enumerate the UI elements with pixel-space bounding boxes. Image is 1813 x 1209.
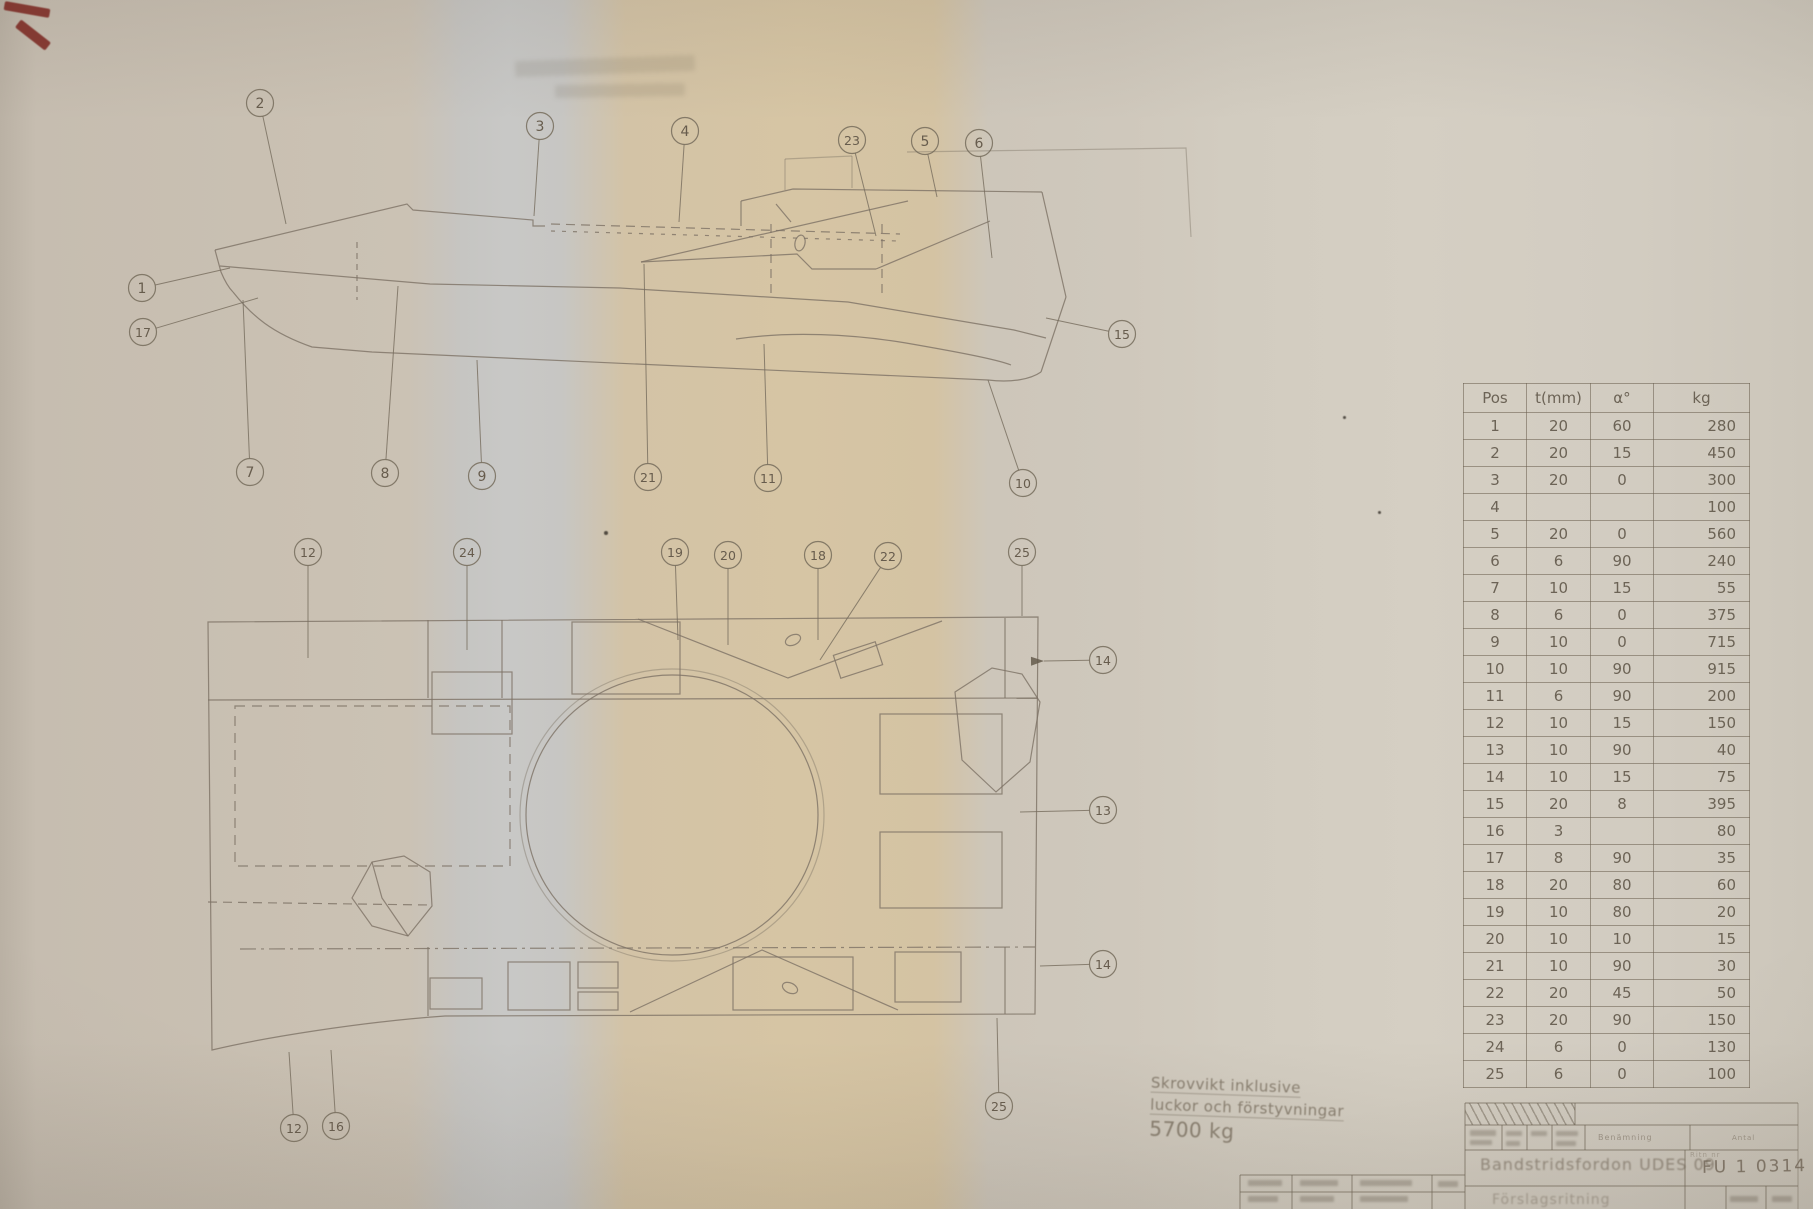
illegible-text xyxy=(1438,1181,1458,1187)
parts-table-cell: 15 xyxy=(1591,575,1654,602)
parts-table-cell: 240 xyxy=(1654,548,1750,575)
blueprint-photo: 234235611715789211110 122419201822251413… xyxy=(0,0,1813,1209)
illegible-text xyxy=(1248,1180,1282,1186)
callout-number: 11 xyxy=(760,471,776,486)
parts-table-cell: 715 xyxy=(1654,629,1750,656)
parts-table-cell: 0 xyxy=(1591,602,1654,629)
callout-number: 25 xyxy=(991,1099,1007,1114)
parts-table-cell: 35 xyxy=(1654,845,1750,872)
callout-number: 15 xyxy=(1114,327,1130,342)
parts-table-header-cell: t(mm) xyxy=(1527,384,1591,413)
callout-number: 5 xyxy=(921,134,930,150)
parts-table-cell: 90 xyxy=(1591,683,1654,710)
illegible-text xyxy=(1360,1180,1412,1186)
callout-number: 1 xyxy=(138,281,147,297)
parts-table-cell: 20 xyxy=(1527,872,1591,899)
parts-table-cell xyxy=(1591,818,1654,845)
illegible-text xyxy=(1300,1196,1334,1202)
callout-number: 16 xyxy=(328,1119,344,1134)
parts-table-cell: 150 xyxy=(1654,1007,1750,1034)
callout-number: 13 xyxy=(1095,803,1111,818)
parts-table-cell: 2 xyxy=(1464,440,1527,467)
callout-13: 13 xyxy=(1020,797,1117,824)
parts-table-cell: 15 xyxy=(1591,764,1654,791)
parts-table-cell: 20 xyxy=(1654,899,1750,926)
parts-table-cell: 25 xyxy=(1464,1061,1527,1088)
illegible-text xyxy=(1730,1196,1758,1202)
parts-table-cell: 75 xyxy=(1654,764,1750,791)
callout-number: 3 xyxy=(536,119,545,135)
parts-table-cell: 300 xyxy=(1654,467,1750,494)
parts-table-header-cell: kg xyxy=(1654,384,1750,413)
callout-2: 2 xyxy=(247,90,287,225)
callout-15: 15 xyxy=(1046,318,1136,348)
callout-number: 14 xyxy=(1095,957,1111,972)
parts-table-cell: 20 xyxy=(1527,1007,1591,1034)
parts-table-cell: 130 xyxy=(1654,1034,1750,1061)
parts-table-cell: 3 xyxy=(1527,818,1591,845)
parts-table-cell: 55 xyxy=(1654,575,1750,602)
parts-table-cell: 20 xyxy=(1527,413,1591,440)
vehicle-word: Bandstridsfordon xyxy=(1480,1155,1633,1174)
callout-10: 10 xyxy=(988,380,1037,497)
parts-table-cell: 24 xyxy=(1464,1034,1527,1061)
drawing-number: FU 1 0314 xyxy=(1702,1156,1807,1178)
callout-1: 1 xyxy=(129,268,231,302)
parts-table-cell: 4 xyxy=(1464,494,1527,521)
parts-table-cell: 10 xyxy=(1527,629,1591,656)
parts-table-cell: 5 xyxy=(1464,521,1527,548)
parts-table-cell: 20 xyxy=(1527,521,1591,548)
callout-6: 6 xyxy=(966,130,993,259)
callout-number: 18 xyxy=(810,548,826,563)
parts-table-cell: 915 xyxy=(1654,656,1750,683)
parts-table-cell: 150 xyxy=(1654,710,1750,737)
title-block-bottom-note: Förslagsritning xyxy=(1492,1192,1610,1208)
handwritten-note: Skrovvikt inklusive luckor och förstyvni… xyxy=(1149,1073,1345,1150)
parts-table-cell: 0 xyxy=(1591,629,1654,656)
parts-table-cell: 0 xyxy=(1591,467,1654,494)
parts-table-cell: 200 xyxy=(1654,683,1750,710)
callout-12: 12 xyxy=(295,539,322,659)
callout-number: 25 xyxy=(1014,545,1030,560)
callout-9: 9 xyxy=(469,360,496,490)
parts-table-cell: 30 xyxy=(1654,953,1750,980)
callout-18: 18 xyxy=(805,542,832,641)
callout-12: 12 xyxy=(281,1052,308,1142)
parts-table-cell: 90 xyxy=(1591,548,1654,575)
callout-11: 11 xyxy=(755,344,782,492)
parts-table-cell: 10 xyxy=(1527,710,1591,737)
parts-table-cell: 100 xyxy=(1654,494,1750,521)
illegible-text xyxy=(1531,1131,1547,1136)
callout-8: 8 xyxy=(372,286,399,487)
parts-table-cell: 21 xyxy=(1464,953,1527,980)
parts-table-cell: 8 xyxy=(1464,602,1527,629)
callout-14: 14 xyxy=(1031,647,1117,674)
parts-table-cell: 6 xyxy=(1527,548,1591,575)
callout-number: 14 xyxy=(1095,653,1111,668)
illegible-text xyxy=(1506,1131,1522,1136)
callout-number: 24 xyxy=(459,545,475,560)
parts-table-cell: 13 xyxy=(1464,737,1527,764)
callout-number: 12 xyxy=(286,1121,302,1136)
callout-4: 4 xyxy=(672,118,699,223)
illegible-text xyxy=(1470,1140,1492,1145)
parts-table-cell: 19 xyxy=(1464,899,1527,926)
callout-number: 6 xyxy=(975,136,984,152)
callout-number: 22 xyxy=(880,549,896,564)
parts-table-cell: 60 xyxy=(1591,413,1654,440)
callout-number: 21 xyxy=(640,470,656,485)
parts-table-cell: 40 xyxy=(1654,737,1750,764)
illegible-text xyxy=(1360,1196,1408,1202)
parts-table-header-cell: Pos xyxy=(1464,384,1527,413)
callout-7: 7 xyxy=(237,300,264,486)
parts-table-cell: 0 xyxy=(1591,1061,1654,1088)
parts-table-cell: 90 xyxy=(1591,737,1654,764)
benamning-label: Benämning xyxy=(1598,1133,1653,1142)
parts-table-cell: 22 xyxy=(1464,980,1527,1007)
parts-table-cell xyxy=(1591,494,1654,521)
antal-label: Antal xyxy=(1732,1134,1755,1142)
note-line: Skrovvikt inklusive xyxy=(1151,1074,1302,1098)
parts-table-cell: 10 xyxy=(1527,737,1591,764)
callout-number: 12 xyxy=(300,545,316,560)
parts-table-cell: 7 xyxy=(1464,575,1527,602)
parts-table-cell: 90 xyxy=(1591,1007,1654,1034)
parts-table-cell: 80 xyxy=(1591,872,1654,899)
callout-24: 24 xyxy=(454,539,481,651)
side-view-drawing xyxy=(215,148,1191,381)
parts-table-cell: 15 xyxy=(1464,791,1527,818)
illegible-text xyxy=(1556,1131,1578,1136)
parts-table-cell: 18 xyxy=(1464,872,1527,899)
callout-23: 23 xyxy=(839,127,877,237)
callout-16: 16 xyxy=(323,1050,350,1140)
parts-table-cell: 8 xyxy=(1591,791,1654,818)
parts-table-cell: 0 xyxy=(1591,521,1654,548)
callout-22: 22 xyxy=(820,543,902,661)
parts-table-cell: 10 xyxy=(1527,656,1591,683)
parts-table-cell: 80 xyxy=(1654,818,1750,845)
parts-table-cell: 20 xyxy=(1527,467,1591,494)
parts-table-header-cell: α° xyxy=(1591,384,1654,413)
parts-table-cell: 6 xyxy=(1527,683,1591,710)
parts-table-cell: 11 xyxy=(1464,683,1527,710)
parts-table-cell: 6 xyxy=(1527,1061,1591,1088)
parts-table-cell: 10 xyxy=(1527,926,1591,953)
callout-number: 4 xyxy=(681,124,690,140)
parts-table-cell: 12 xyxy=(1464,710,1527,737)
parts-table-cell: 16 xyxy=(1464,818,1527,845)
callout-20: 20 xyxy=(715,542,742,646)
parts-table-cell: 23 xyxy=(1464,1007,1527,1034)
callout-number: 20 xyxy=(720,548,736,563)
callout-number: 8 xyxy=(381,466,390,482)
parts-table-cell: 10 xyxy=(1527,575,1591,602)
parts-table: Post(mm)α°kg1206028022015450320030041005… xyxy=(1463,383,1750,1088)
parts-table-cell: 10 xyxy=(1591,926,1654,953)
illegible-text xyxy=(1248,1196,1278,1202)
parts-table-cell: 60 xyxy=(1654,872,1750,899)
parts-table-cell: 280 xyxy=(1654,413,1750,440)
callout-19: 19 xyxy=(662,539,689,641)
parts-table-cell: 15 xyxy=(1591,440,1654,467)
callout-21: 21 xyxy=(635,264,662,491)
callout-5: 5 xyxy=(912,128,939,198)
parts-table-cell: 1 xyxy=(1464,413,1527,440)
parts-table-cell: 45 xyxy=(1591,980,1654,1007)
illegible-text xyxy=(1300,1180,1338,1186)
parts-table-cell: 9 xyxy=(1464,629,1527,656)
plan-view-drawing xyxy=(208,617,1040,1050)
parts-table-cell: 10 xyxy=(1527,764,1591,791)
parts-table-cell xyxy=(1527,494,1591,521)
parts-table-cell: 90 xyxy=(1591,953,1654,980)
vehicle-designation: Bandstridsfordon UDES 09 xyxy=(1480,1155,1716,1174)
callout-number: 10 xyxy=(1015,476,1031,491)
parts-table-cell: 395 xyxy=(1654,791,1750,818)
parts-table-cell: 450 xyxy=(1654,440,1750,467)
note-weight: 5700 kg xyxy=(1149,1117,1235,1144)
illegible-text xyxy=(1506,1141,1520,1146)
parts-table-cell: 20 xyxy=(1464,926,1527,953)
parts-table-cell: 3 xyxy=(1464,467,1527,494)
parts-table-cell: 0 xyxy=(1591,1034,1654,1061)
parts-table-cell: 375 xyxy=(1654,602,1750,629)
callout-3: 3 xyxy=(527,113,554,217)
parts-table-cell: 20 xyxy=(1527,440,1591,467)
title-block-hatch xyxy=(1465,1103,1575,1125)
callout-number: 19 xyxy=(667,545,683,560)
callout-number: 7 xyxy=(246,465,255,481)
parts-table-cell: 50 xyxy=(1654,980,1750,1007)
parts-table-cell: 6 xyxy=(1527,1034,1591,1061)
callout-number: 2 xyxy=(256,96,265,112)
callout-17: 17 xyxy=(130,298,259,346)
parts-table-cell: 20 xyxy=(1527,791,1591,818)
callout-number: 9 xyxy=(478,469,487,485)
parts-table-cell: 17 xyxy=(1464,845,1527,872)
parts-table-cell: 10 xyxy=(1464,656,1527,683)
illegible-text xyxy=(1556,1141,1576,1146)
parts-table-cell: 15 xyxy=(1654,926,1750,953)
parts-table-cell: 6 xyxy=(1464,548,1527,575)
illegible-text xyxy=(1772,1196,1792,1202)
illegible-text xyxy=(1470,1130,1496,1136)
callout-number: 23 xyxy=(844,133,860,148)
parts-table-cell: 20 xyxy=(1527,980,1591,1007)
callout-25: 25 xyxy=(1009,539,1036,617)
parts-table-cell: 80 xyxy=(1591,899,1654,926)
parts-table-cell: 15 xyxy=(1591,710,1654,737)
callout-number: 17 xyxy=(135,325,151,340)
callout-25: 25 xyxy=(986,1018,1013,1120)
callout-14: 14 xyxy=(1040,951,1117,978)
parts-table-cell: 100 xyxy=(1654,1061,1750,1088)
parts-table-cell: 90 xyxy=(1591,845,1654,872)
parts-table-cell: 10 xyxy=(1527,953,1591,980)
parts-table-cell: 10 xyxy=(1527,899,1591,926)
parts-table-cell: 90 xyxy=(1591,656,1654,683)
parts-table-cell: 14 xyxy=(1464,764,1527,791)
parts-table-cell: 6 xyxy=(1527,602,1591,629)
parts-table-cell: 8 xyxy=(1527,845,1591,872)
parts-table-cell: 560 xyxy=(1654,521,1750,548)
